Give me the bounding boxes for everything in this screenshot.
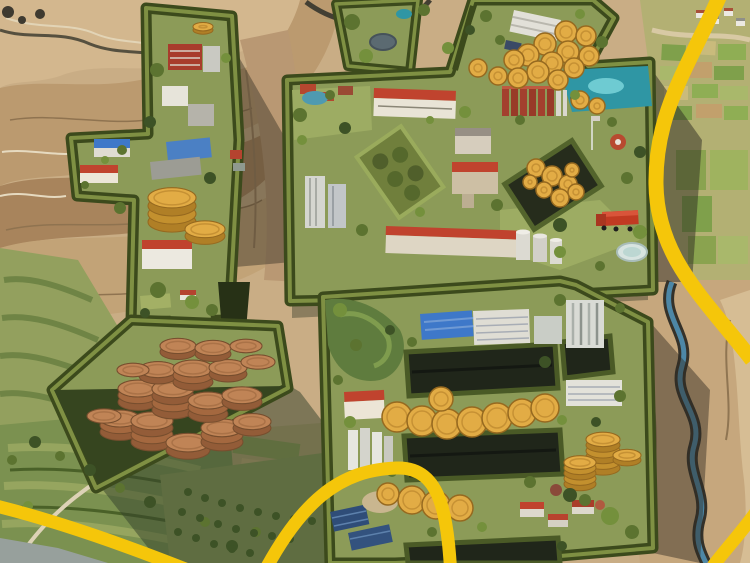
red-shed	[230, 150, 242, 159]
autumn-bush-2	[595, 500, 605, 510]
teal-pool	[396, 9, 412, 19]
trench-3	[406, 538, 560, 563]
villa-roof	[142, 240, 192, 249]
high-rise	[566, 300, 604, 348]
garden-pocket	[336, 0, 418, 72]
villa-body	[142, 249, 192, 269]
small-blue-pond	[302, 91, 328, 105]
office-block-2	[534, 316, 562, 344]
grey-shed	[233, 163, 245, 171]
red-truck	[596, 210, 639, 231]
tiny-house	[180, 290, 196, 295]
beige-house-red	[452, 162, 498, 172]
blue-warehouse-d	[420, 310, 474, 340]
grey-tower	[203, 46, 220, 72]
white-block	[162, 86, 188, 106]
apartment-tower-2	[328, 184, 346, 228]
brick-building	[168, 44, 202, 70]
slab-building	[566, 380, 622, 406]
grey-block	[188, 104, 214, 126]
illustration-canvas: Stylized aerial illustration: giant hedg…	[0, 0, 750, 563]
red-roof-house	[80, 165, 118, 173]
red-house-d-roof	[344, 390, 384, 402]
autumn-bush	[550, 484, 562, 496]
grey-pond	[370, 34, 396, 50]
beige-house-grey	[455, 128, 491, 136]
